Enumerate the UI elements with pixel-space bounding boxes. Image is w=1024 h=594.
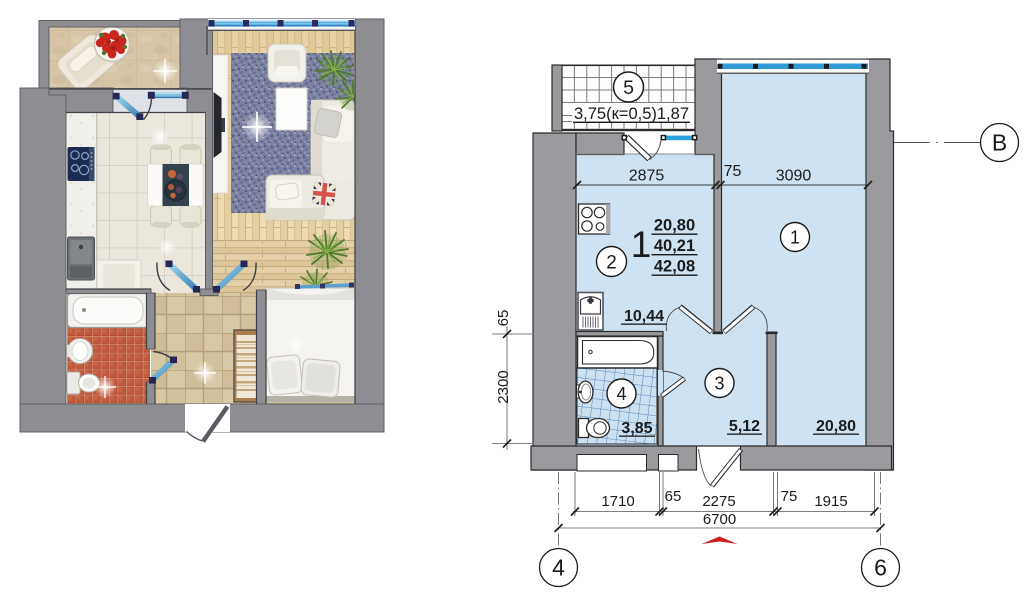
svg-text:6700: 6700 [703, 511, 736, 528]
svg-text:2: 2 [606, 253, 617, 274]
svg-text:1915: 1915 [814, 493, 847, 510]
svg-text:2875: 2875 [629, 168, 665, 185]
svg-text:10,44: 10,44 [624, 308, 664, 325]
svg-text:6: 6 [874, 555, 887, 581]
svg-text:40,21: 40,21 [654, 237, 695, 255]
svg-text:5,12: 5,12 [729, 418, 760, 435]
svg-text:1710: 1710 [601, 493, 634, 510]
svg-text:2275: 2275 [702, 493, 735, 510]
svg-text:4: 4 [552, 555, 565, 581]
svg-text:75: 75 [724, 163, 742, 180]
svg-text:65: 65 [665, 488, 682, 505]
svg-text:75: 75 [781, 488, 798, 505]
svg-text:2300: 2300 [495, 370, 512, 403]
svg-text:В: В [992, 130, 1007, 156]
svg-text:20,80: 20,80 [654, 217, 695, 235]
svg-text:1: 1 [790, 228, 800, 248]
svg-text:5: 5 [623, 77, 634, 99]
svg-text:20,80: 20,80 [816, 418, 856, 435]
svg-text:65: 65 [495, 310, 512, 327]
svg-text:3,75(к=0,5)1,87: 3,75(к=0,5)1,87 [574, 105, 689, 123]
svg-text:4: 4 [616, 384, 626, 404]
svg-text:3,85: 3,85 [621, 420, 652, 437]
svg-text:1: 1 [631, 224, 652, 265]
svg-text:42,08: 42,08 [654, 258, 695, 276]
svg-text:3: 3 [714, 374, 724, 394]
svg-text:3090: 3090 [776, 168, 812, 185]
